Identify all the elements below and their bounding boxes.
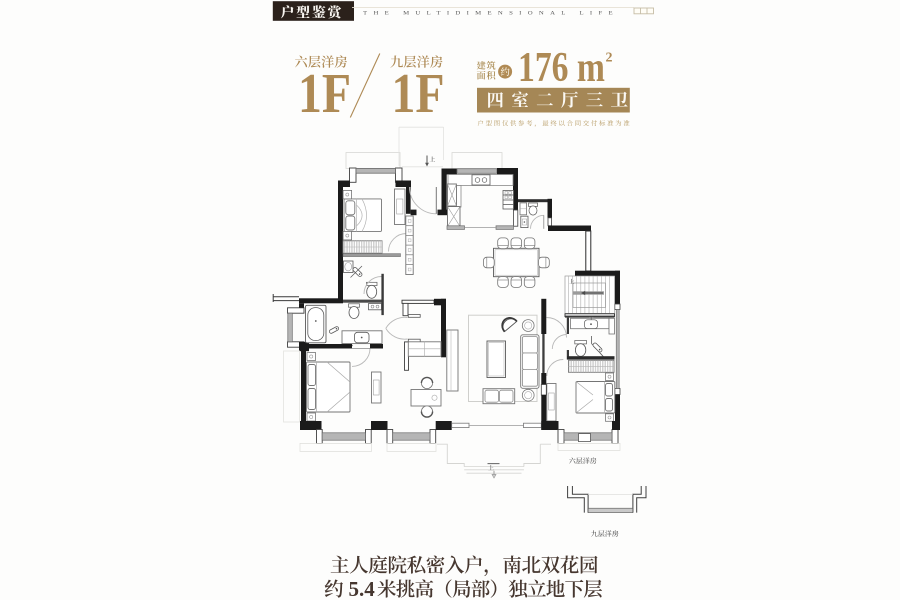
svg-text:1F: 1F	[298, 63, 351, 125]
svg-text:1F: 1F	[392, 63, 445, 125]
svg-text:5.4: 5.4	[349, 577, 376, 600]
svg-text:176 m: 176 m	[518, 45, 605, 91]
svg-text:THE MULTIDIMENSIONAL LIFE: THE MULTIDIMENSIONAL LIFE	[363, 11, 619, 17]
svg-text:2: 2	[606, 51, 613, 66]
